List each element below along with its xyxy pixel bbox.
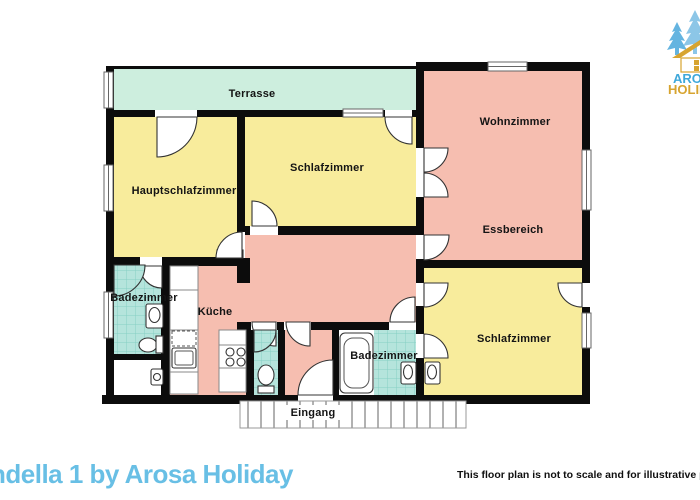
window-icon	[694, 60, 699, 65]
pine-tree-icon	[667, 10, 700, 55]
disclaimer-text: This floor plan is not to scale and for …	[457, 469, 700, 481]
label-badezimmer-left: Badezimmer	[110, 292, 178, 304]
wall-segment	[246, 322, 254, 404]
label-hauptschlafzimmer: Hauptschlafzimmer	[132, 185, 237, 197]
door-gap	[389, 322, 416, 330]
walkway-hatch	[240, 401, 466, 428]
washbasin-bowl	[154, 374, 161, 381]
toilet	[258, 365, 274, 385]
floorplan-drawing: Terrasse Hauptschlafzimmer Schlafzimmer …	[0, 0, 700, 445]
wall-segment	[106, 66, 424, 69]
door-gap	[155, 110, 197, 117]
toilet	[139, 338, 157, 352]
arosa-holiday-logo: AROSA HOLIDAY	[648, 8, 700, 94]
toilet-tank	[156, 336, 163, 353]
wall-segment	[106, 354, 163, 360]
label-essbereich: Essbereich	[483, 224, 544, 236]
wall-segment	[416, 260, 590, 268]
door-gap	[582, 283, 591, 307]
stove-burner	[237, 358, 245, 366]
door-gap	[250, 226, 278, 235]
wall-segment	[582, 62, 590, 404]
door-gap	[416, 148, 424, 197]
label-wohnzimmer: Wohnzimmer	[480, 116, 551, 128]
door-gap	[385, 110, 412, 117]
room-corridor	[237, 235, 416, 322]
stove-burner	[226, 358, 234, 366]
label-badezimmer-bottom: Badezimmer	[350, 350, 418, 362]
property-title: ndella 1 by Arosa Holiday	[0, 459, 293, 490]
label-terrasse: Terrasse	[229, 88, 276, 100]
toilet-tank	[258, 386, 274, 393]
sink-basin	[404, 365, 413, 379]
door-gap	[416, 283, 424, 306]
wall-segment	[237, 110, 245, 232]
label-kueche: Küche	[198, 306, 233, 318]
entrance-walkway	[240, 401, 466, 428]
kitchen-sink-basin	[175, 351, 193, 365]
label-eingang: Eingang	[291, 407, 336, 419]
sink-basin	[149, 308, 160, 323]
sink-basin	[428, 365, 437, 379]
door-gap	[416, 235, 424, 259]
stove-burner	[226, 348, 234, 356]
pine-tree-icon	[667, 22, 687, 55]
logo-text-line2: HOLIDAY	[668, 82, 700, 94]
stove-burner	[237, 348, 245, 356]
label-schlafzimmer-bottom: Schlafzimmer	[477, 333, 551, 345]
label-schlafzimmer-top: Schlafzimmer	[290, 162, 364, 174]
floorplan-page: Terrasse Hauptschlafzimmer Schlafzimmer …	[0, 0, 700, 500]
wall-segment	[278, 330, 285, 402]
